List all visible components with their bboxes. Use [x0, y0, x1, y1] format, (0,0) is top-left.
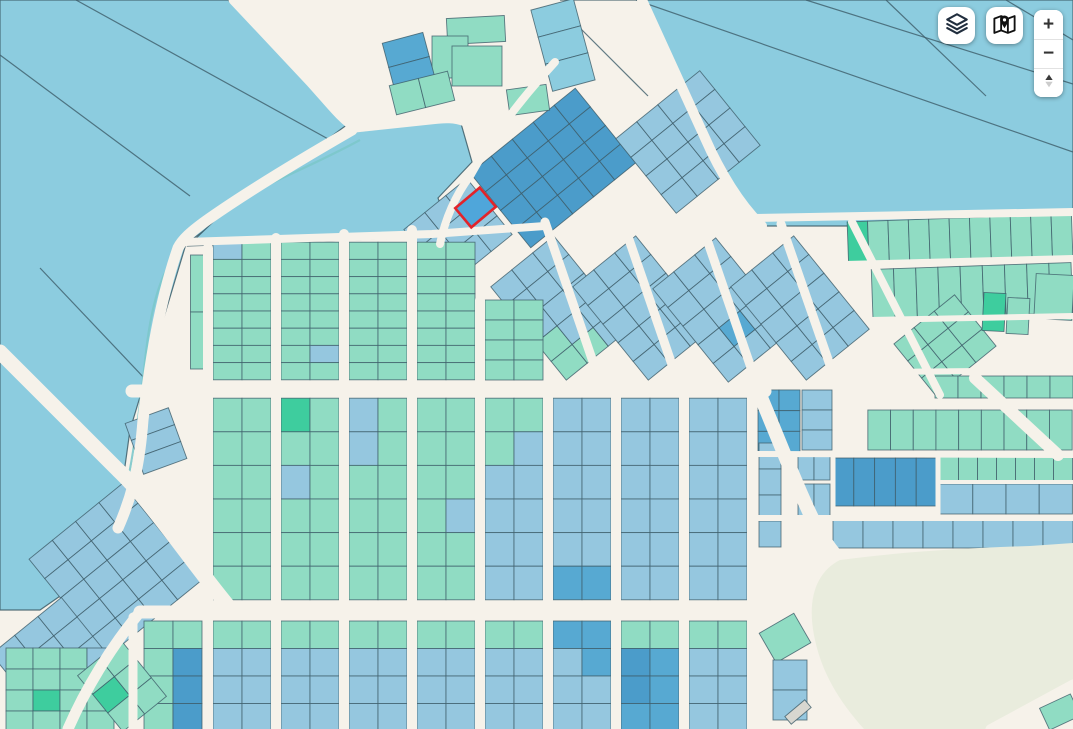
- parcel-block: [935, 376, 1073, 398]
- basemap-button[interactable]: [986, 7, 1023, 44]
- parcel-block: [417, 242, 475, 380]
- parcel-block: [833, 520, 1073, 548]
- parcel-block: [689, 621, 747, 729]
- parcel-block: [349, 398, 407, 600]
- layers-button[interactable]: [938, 7, 975, 44]
- parcel-block: [349, 242, 407, 380]
- zoom-out-button[interactable]: −: [1034, 39, 1063, 68]
- parcel-block: [553, 621, 611, 729]
- parcel-block: [417, 398, 475, 600]
- parcel-block: [281, 621, 339, 729]
- parcel-block: [553, 398, 611, 600]
- parcel-block: [417, 621, 475, 729]
- parcel-block: [485, 300, 543, 380]
- parcel-block: [621, 398, 679, 600]
- parcel-block: [689, 398, 747, 600]
- parcel-block: [144, 621, 202, 729]
- parcel-block: [485, 398, 543, 600]
- parcel-block: [940, 484, 1073, 514]
- parcel-block: [940, 457, 1073, 481]
- street: [757, 454, 1073, 455]
- compass-button[interactable]: [1034, 68, 1063, 97]
- parcel-block: [349, 621, 407, 729]
- parcel-block: [621, 621, 679, 729]
- map-canvas[interactable]: [0, 0, 1073, 729]
- map-viewport[interactable]: + −: [0, 0, 1073, 729]
- zoom-in-button[interactable]: +: [1034, 10, 1063, 39]
- map-marker-icon: [991, 11, 1018, 41]
- compass-icon: [1039, 70, 1059, 96]
- parcel-block: [833, 458, 937, 506]
- parcel-block: [213, 242, 271, 380]
- parcel-block: [213, 621, 271, 729]
- street: [880, 370, 1073, 372]
- parcel-block: [485, 621, 543, 729]
- parcel-block: [759, 443, 781, 547]
- parcel-block: [452, 46, 502, 86]
- parcel-block: [281, 242, 339, 380]
- parcel-block: [802, 390, 832, 450]
- parcel-block: [281, 398, 339, 600]
- parcel-block: [213, 398, 271, 600]
- zoom-control: + −: [1034, 10, 1063, 97]
- layers-icon: [944, 11, 970, 40]
- parcel-block: [982, 292, 1006, 331]
